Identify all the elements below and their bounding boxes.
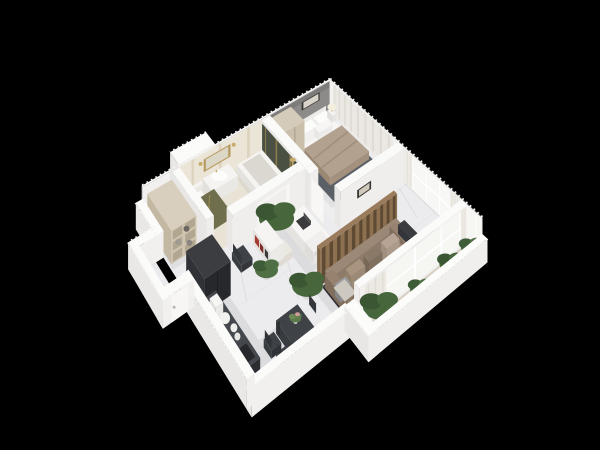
bedroom-window-curtain-face bbox=[344, 94, 346, 126]
gold-shower-head-shape bbox=[290, 158, 296, 162]
flower-blossom bbox=[295, 312, 300, 316]
bathroom-sconce-1 bbox=[232, 143, 236, 147]
bathroom-sconce-1-shape bbox=[232, 143, 236, 147]
bedroom-window-curtain-face bbox=[372, 119, 374, 153]
nightstand-lamp-shade-shape bbox=[327, 104, 336, 111]
entry-door-knob bbox=[173, 306, 176, 309]
bedroom-window-curtain-face bbox=[357, 106, 359, 139]
vanity-basin-shape bbox=[211, 171, 227, 181]
bedroom-window-curtain-face bbox=[339, 89, 341, 121]
kitchen-jar-1 bbox=[230, 323, 237, 332]
cubby-item-1-shape bbox=[186, 240, 192, 246]
cubby-item-1 bbox=[186, 240, 192, 246]
sofa-plant-foliage bbox=[305, 272, 325, 286]
kitchen-jar-1-shape bbox=[230, 323, 237, 332]
apartment-3d-floorplan bbox=[0, 0, 600, 450]
cubby-item-3 bbox=[184, 226, 190, 232]
kitchen-jar-2 bbox=[234, 333, 240, 341]
floor-plan-render bbox=[0, 0, 600, 450]
cubby-item-3-shape bbox=[184, 226, 190, 232]
bedroom-living-wall-face bbox=[334, 185, 340, 230]
cubby-item-2-shape bbox=[175, 239, 181, 245]
cubby-item-2 bbox=[175, 239, 181, 245]
corridor-wall-face bbox=[227, 208, 233, 254]
nightstand-lamp-shade bbox=[327, 104, 336, 111]
desk-plant-foliage bbox=[273, 202, 295, 218]
nook-plant-foliage bbox=[264, 259, 278, 269]
bathroom-sconce-2 bbox=[199, 162, 203, 166]
vestibule-wall-end-face bbox=[163, 296, 170, 329]
living-curtain-left-face bbox=[407, 151, 408, 185]
gold-shower-head bbox=[290, 158, 296, 162]
bedroom-window-curtain-face bbox=[350, 100, 352, 133]
entry-door-knob-shape bbox=[173, 306, 176, 309]
bedroom-window-curtain-face bbox=[364, 112, 366, 145]
living-curtain-left-face bbox=[410, 154, 411, 188]
bathroom-sconce-2-shape bbox=[199, 162, 203, 166]
kitchen-jar-2-shape bbox=[234, 333, 240, 341]
flower-blossom-shape bbox=[295, 312, 300, 316]
vanity-basin bbox=[211, 171, 227, 181]
bedroom-south-wall-b-face bbox=[305, 168, 310, 210]
